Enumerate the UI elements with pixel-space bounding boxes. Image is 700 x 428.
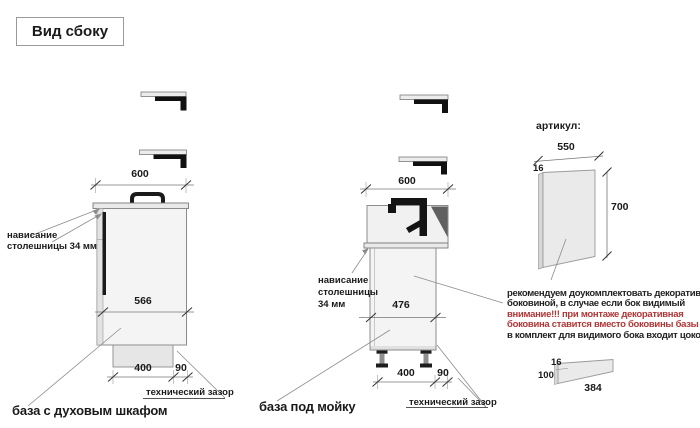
page-title: Вид сбоку — [16, 17, 124, 46]
dim-sink-body-depth: 476 — [385, 299, 417, 311]
sink-overhang-note-line2: столешницы — [318, 287, 378, 298]
oven-overhang-note-line1: нависание — [7, 230, 57, 241]
oven-overhang-note-line2: столешницы 34 мм — [7, 241, 97, 252]
dim-plinth-height: 100 — [538, 370, 554, 381]
front-door-edge — [97, 209, 103, 346]
note-line-3-warning: внимание!!! при монтаже декоративная — [507, 309, 683, 320]
dim-oven-rear-gap: 90 — [170, 362, 192, 374]
oven-gap-label: технический зазор — [146, 387, 234, 398]
countertop-bracket-icon — [140, 150, 187, 168]
dim-panel-width: 550 — [550, 141, 582, 153]
dim-panel-thickness: 16 — [533, 163, 544, 174]
sink-gap-label: технический зазор — [409, 397, 497, 408]
sink-base-label: база под мойку — [259, 399, 355, 414]
sink-overhang-note-line1: нависание — [318, 275, 368, 286]
countertop-bracket-icon — [141, 92, 187, 111]
decorative-side-panel — [534, 152, 612, 281]
technical-drawing — [0, 0, 700, 428]
dim-plinth-thickness: 16 — [551, 357, 562, 368]
oven-door-handle — [132, 194, 163, 203]
note-line-2: боковиной, в случае если бок видимый — [507, 298, 685, 309]
oven-base-cabinet — [93, 194, 189, 367]
dim-sink-plinth-depth: 400 — [391, 367, 421, 379]
sink-overhang-note-line3: 34 мм — [318, 299, 345, 310]
dim-sink-countertop-width: 600 — [391, 175, 423, 187]
countertop-bracket-icon — [399, 157, 447, 175]
oven-front-strip — [103, 212, 107, 295]
cabinet-body — [97, 209, 187, 346]
dim-oven-body-depth: 566 — [127, 295, 159, 307]
note-line-1: рекомендуем доукомплектовать декоративно… — [507, 288, 700, 299]
dim-panel-height: 700 — [611, 201, 629, 213]
dim-oven-plinth-depth: 400 — [128, 362, 158, 374]
dim-oven-countertop-width: 600 — [124, 168, 156, 180]
countertop — [364, 243, 448, 248]
cabinet-leg — [376, 351, 388, 368]
note-line-5: в комплект для видимого бока входит цоко… — [507, 330, 700, 341]
note-line-4-warning: боковина ставится вместо боковины базы л… — [507, 319, 700, 330]
side-view-drawing-page: Вид сбоку 600 566 400 90 нависание столе… — [0, 0, 700, 428]
plinth-strip-piece — [555, 360, 614, 385]
dim-plinth-length: 384 — [580, 382, 606, 394]
oven-base-label: база с духовым шкафом — [12, 403, 167, 418]
dim-sink-rear-gap: 90 — [432, 367, 454, 379]
article-header: артикул: — [536, 120, 581, 132]
countertop-bracket-icon — [400, 95, 448, 113]
cabinet-leg — [420, 351, 432, 368]
countertop — [93, 203, 189, 209]
